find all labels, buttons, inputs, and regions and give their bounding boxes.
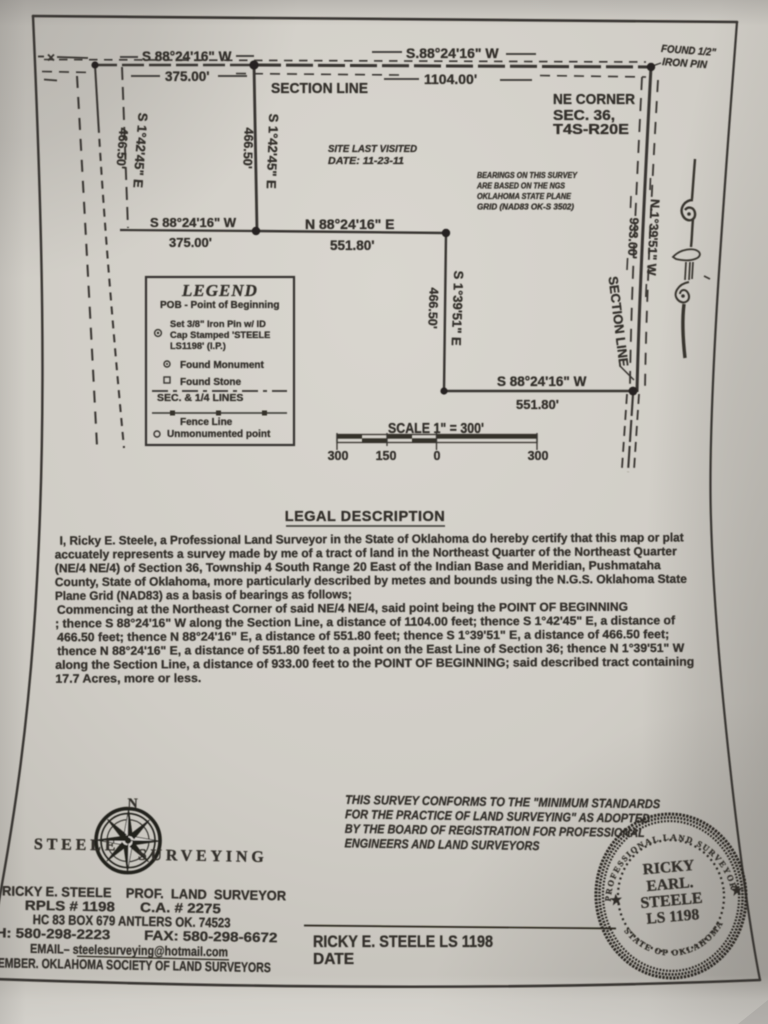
svg-text:S.88°24'16" W: S.88°24'16" W — [406, 45, 499, 61]
svg-text:RICKY E. STEELE LS 1198: RICKY E. STEELE LS 1198 — [313, 933, 493, 951]
svg-text:DATE: DATE — [313, 951, 354, 968]
svg-text:466.50': 466.50' — [240, 127, 255, 169]
svg-text:17.7 Acres, more or less.: 17.7 Acres, more or less. — [55, 671, 201, 686]
svg-text:Found Stone: Found Stone — [180, 377, 242, 388]
svg-text:BEARINGS ON THIS SURVEY: BEARINGS ON THIS SURVEY — [477, 171, 578, 180]
svg-text:SECTION LINE: SECTION LINE — [271, 80, 368, 97]
svg-text:LEGEND: LEGEND — [181, 281, 258, 300]
svg-text:0: 0 — [434, 449, 441, 463]
svg-text:375.00': 375.00' — [165, 69, 210, 84]
svg-text:S 88°24'16" W: S 88°24'16" W — [497, 374, 587, 389]
svg-text:POB - Point of Beginning: POB - Point of Beginning — [160, 300, 279, 311]
svg-text:Cap Stamped 'STEELE: Cap Stamped 'STEELE — [170, 330, 270, 340]
svg-text:SEC. & 1/4 LINES: SEC. & 1/4 LINES — [157, 392, 243, 404]
svg-text:ARE BASED ON THE NGS: ARE BASED ON THE NGS — [476, 182, 565, 191]
svg-text:551.80': 551.80' — [330, 238, 375, 253]
svg-text:Set 3/8" Iron Pin w/ ID: Set 3/8" Iron Pin w/ ID — [170, 319, 266, 329]
svg-text:DATE: 11-23-11: DATE: 11-23-11 — [328, 155, 404, 167]
svg-text:LEGAL DESCRIPTION: LEGAL DESCRIPTION — [285, 509, 446, 525]
svg-text:T4S-R20E: T4S-R20E — [553, 122, 629, 138]
svg-text:LS1198' (I.P.): LS1198' (I.P.) — [170, 341, 226, 351]
svg-text:Unmonumented point: Unmonumented point — [167, 429, 271, 440]
svg-text:S 88°24'16" W: S 88°24'16" W — [150, 215, 237, 230]
svg-text:551.80': 551.80' — [516, 397, 559, 412]
svg-text:SITE LAST VISITED: SITE LAST VISITED — [328, 143, 417, 155]
svg-text:S 1°42'45" E: S 1°42'45" E — [264, 113, 282, 189]
svg-text:GRID (NAD83 OK-S 3502): GRID (NAD83 OK-S 3502) — [477, 203, 574, 212]
svg-text:S 88°24'16" W: S 88°24'16" W — [142, 49, 232, 64]
svg-text:Found Monument: Found Monument — [180, 360, 265, 371]
svg-text:STEELE: STEELE — [34, 836, 118, 854]
svg-text:OKLAHOMA STATE PLANE: OKLAHOMA STATE PLANE — [477, 192, 572, 201]
svg-text:933.00': 933.00' — [625, 217, 641, 259]
svg-text:N: N — [127, 797, 137, 812]
svg-text:SURVEYING: SURVEYING — [138, 847, 266, 866]
svg-text:466.50': 466.50' — [425, 287, 440, 329]
svg-text:N 88°24'16" E: N 88°24'16" E — [305, 216, 395, 232]
svg-text:150: 150 — [376, 449, 397, 463]
svg-text:1104.00': 1104.00' — [424, 71, 477, 87]
svg-text:ENGINEERS AND LAND SURVEYORS: ENGINEERS AND LAND SURVEYORS — [344, 836, 540, 853]
svg-text:Fence Line: Fence Line — [180, 417, 233, 428]
svg-text:NE CORNER: NE CORNER — [553, 92, 635, 108]
svg-text:300: 300 — [328, 449, 349, 463]
svg-text:300: 300 — [528, 449, 549, 463]
svg-text:S 1°39'51" E: S 1°39'51" E — [449, 270, 467, 346]
svg-text:375.00': 375.00' — [169, 235, 212, 250]
svg-text:466.50': 466.50' — [114, 127, 131, 169]
